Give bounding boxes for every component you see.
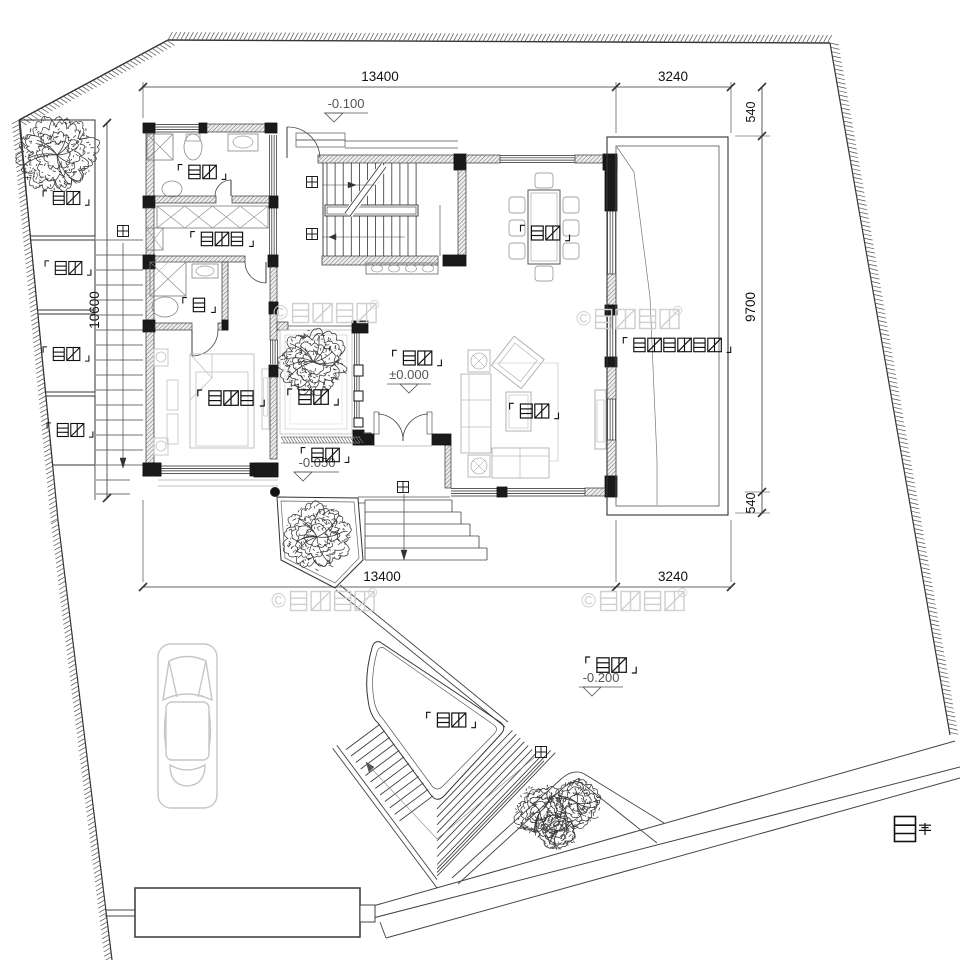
svg-text:±0.000: ±0.000 [389, 367, 429, 382]
svg-text:-0.100: -0.100 [328, 96, 365, 111]
svg-text:©: © [273, 303, 288, 325]
svg-text:540: 540 [744, 493, 758, 514]
svg-text:3240: 3240 [658, 569, 688, 584]
svg-text:540: 540 [744, 102, 758, 123]
svg-text:3240: 3240 [658, 69, 688, 84]
svg-text:©: © [581, 591, 596, 613]
svg-text:9700: 9700 [743, 292, 758, 322]
svg-text:13400: 13400 [361, 69, 399, 84]
svg-text:©: © [576, 309, 591, 331]
svg-text:13400: 13400 [363, 569, 401, 584]
svg-text:©: © [271, 591, 286, 613]
